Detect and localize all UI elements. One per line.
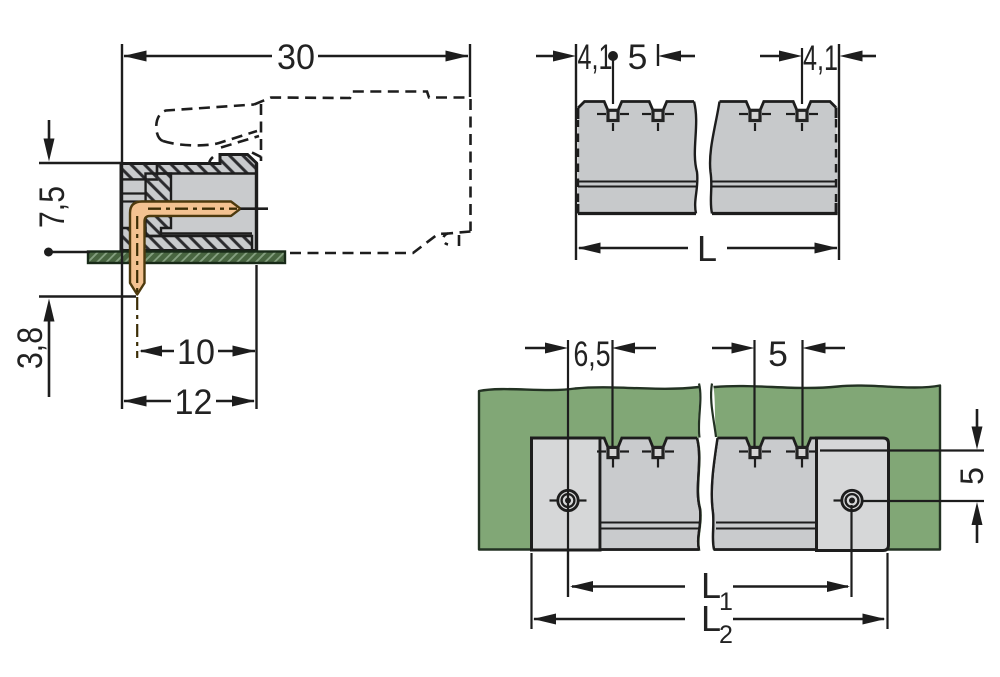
svg-text:1: 1: [719, 588, 733, 616]
svg-text:5: 5: [768, 334, 788, 374]
svg-text:L: L: [697, 228, 717, 269]
svg-text:10: 10: [177, 332, 215, 372]
svg-text:7,5: 7,5: [32, 186, 72, 228]
svg-text:4,1: 4,1: [803, 38, 838, 78]
svg-text:2: 2: [719, 621, 733, 649]
svg-text:30: 30: [277, 37, 315, 77]
svg-text:4,1: 4,1: [578, 37, 613, 77]
svg-text:5: 5: [628, 37, 648, 77]
svg-text:12: 12: [175, 382, 213, 422]
svg-text:5: 5: [954, 467, 990, 485]
svg-text:6,5: 6,5: [574, 334, 611, 374]
svg-text:L: L: [701, 598, 721, 639]
svg-text:3,8: 3,8: [10, 327, 50, 369]
